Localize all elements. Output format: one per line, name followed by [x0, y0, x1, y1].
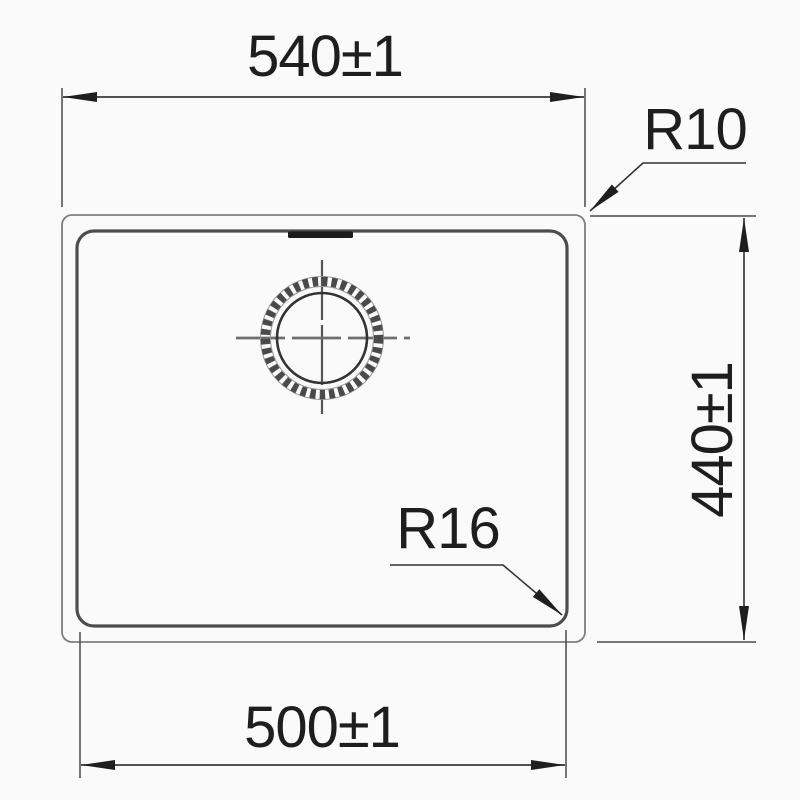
dimension-side-height: 440±1: [590, 216, 756, 642]
outer-radius-leader: [590, 163, 746, 211]
outer-radius-label: R10: [643, 97, 746, 162]
callout-inner-radius: R16: [390, 496, 562, 615]
top-width-label: 540±1: [247, 24, 403, 89]
side-height-label: 440±1: [680, 362, 745, 518]
technical-drawing-canvas: 540±1 R10 440±1 R16 500±1: [0, 0, 800, 800]
bottom-width-label: 500±1: [244, 695, 400, 760]
inner-radius-label: R16: [396, 496, 499, 561]
sink-dimension-drawing: 540±1 R10 440±1 R16 500±1: [0, 0, 800, 800]
dimension-bottom-width: 500±1: [80, 630, 566, 778]
callout-outer-radius: R10: [590, 97, 747, 211]
inner-radius-leader: [390, 565, 562, 615]
drain: [236, 260, 410, 414]
dimension-top-width: 540±1: [62, 24, 585, 207]
overflow-slot: [288, 232, 353, 239]
